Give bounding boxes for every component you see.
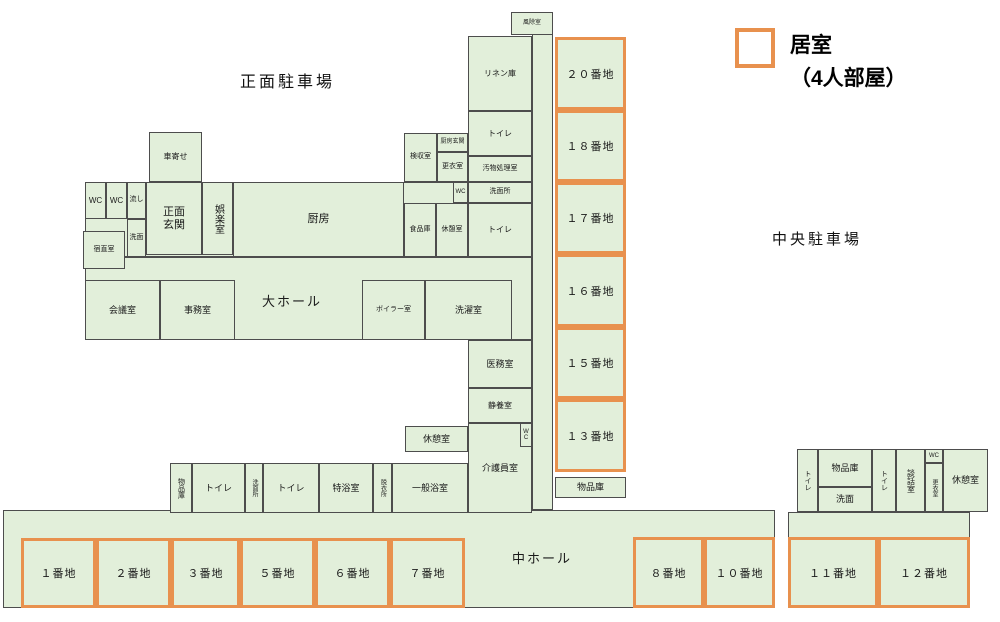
floor-plan: 車寄せ WC WC 流し 洗面 正面 玄関 娯楽室 厨房 宿直室 検収室 厨房玄…: [0, 0, 1000, 622]
unit-11: １１番地: [788, 537, 878, 608]
room-lounge-r: 談話室: [896, 449, 925, 512]
room-night-duty: 宿直室: [83, 231, 125, 269]
room-sink: 流し: [127, 182, 146, 219]
unit-8: ８番地: [633, 537, 704, 608]
room-special-bath: 特浴室: [319, 463, 373, 513]
unit-12: １２番地: [878, 537, 970, 608]
unit-18: １８番地: [555, 110, 626, 182]
legend-label: 居室 （4人部屋）: [790, 30, 907, 95]
room-kitchen: 厨房: [233, 182, 404, 257]
room-storage-units: 物品庫: [555, 477, 626, 498]
room-toilet-b2: トイレ: [263, 463, 319, 513]
room-laundry: 洗濯室: [425, 280, 512, 340]
room-windbreak: 風除室: [511, 12, 553, 35]
room-toilet-r2: トイレ: [872, 449, 896, 512]
room-boiler: ボイラー室: [362, 280, 425, 340]
room-toilet-b1: トイレ: [192, 463, 245, 513]
unit-10: １０番地: [704, 537, 775, 608]
room-linen: リネン庫: [468, 36, 532, 111]
room-general-bath: 一般浴室: [392, 463, 468, 513]
unit-3: ３番地: [171, 538, 240, 608]
room-toilet-n2: トイレ: [468, 203, 532, 257]
room-wc-r: WC: [925, 449, 943, 463]
room-recreation: 娯楽室: [202, 182, 233, 255]
room-storage-bath: 物品庫: [170, 463, 192, 513]
room-undressing: 脱衣所: [373, 463, 392, 513]
legend-line1: 居室: [790, 34, 832, 57]
central-corridor: [532, 33, 553, 510]
room-toilet-n1: トイレ: [468, 111, 532, 156]
middle-hall-label: 中ホール: [512, 548, 572, 567]
legend-line2: （4人部屋）: [790, 67, 907, 90]
room-changing-r: 更衣室: [925, 463, 943, 512]
unit-20: ２０番地: [555, 37, 626, 110]
room-washbasin-r: 洗面: [818, 487, 872, 512]
room-office: 事務室: [160, 280, 235, 340]
legend-unit-swatch: [735, 28, 775, 68]
room-meeting: 会議室: [85, 280, 160, 340]
room-wc-vert: WC: [520, 423, 532, 447]
room-changing-kitchen: 更衣室: [437, 152, 468, 182]
unit-16: １６番地: [555, 254, 626, 327]
unit-17: １７番地: [555, 182, 626, 254]
room-washroom-n: 洗面所: [468, 182, 532, 203]
unit-6: ６番地: [315, 538, 390, 608]
large-hall-label: 大ホール: [262, 291, 322, 310]
room-break-r: 休憩室: [943, 449, 988, 512]
room-rest: 静養室: [468, 388, 532, 423]
room-wc-a: WC: [85, 182, 106, 219]
room-front-entrance: 正面 玄関: [146, 182, 202, 255]
room-break-kitchen: 休憩室: [436, 203, 468, 257]
room-wc-small: WC: [453, 182, 468, 203]
unit-13: １３番地: [555, 399, 626, 472]
room-toilet-r1: トイレ: [797, 449, 818, 512]
unit-2: ２番地: [96, 538, 171, 608]
room-porch: 車寄せ: [149, 132, 202, 182]
room-wc-b: WC: [106, 182, 127, 219]
unit-15: １５番地: [555, 327, 626, 399]
room-break-mid: 休憩室: [405, 426, 468, 452]
unit-5: ５番地: [240, 538, 315, 608]
central-parking-label: 中央駐車場: [772, 228, 862, 249]
front-parking-label: 正面駐車場: [240, 68, 335, 92]
room-waste: 汚物処理室: [468, 156, 532, 182]
unit-7: ７番地: [390, 538, 465, 608]
room-medical: 医務室: [468, 340, 532, 388]
room-storage-r: 物品庫: [818, 449, 872, 487]
room-food-storage: 食品庫: [404, 203, 436, 257]
room-washbasin-entrance: 洗面: [127, 219, 146, 257]
room-kitchen-entrance: 厨房玄関: [437, 133, 468, 152]
unit-1: １番地: [21, 538, 96, 608]
room-inspection: 検収室: [404, 133, 437, 182]
room-washroom-bath: 洗面所: [245, 463, 263, 513]
